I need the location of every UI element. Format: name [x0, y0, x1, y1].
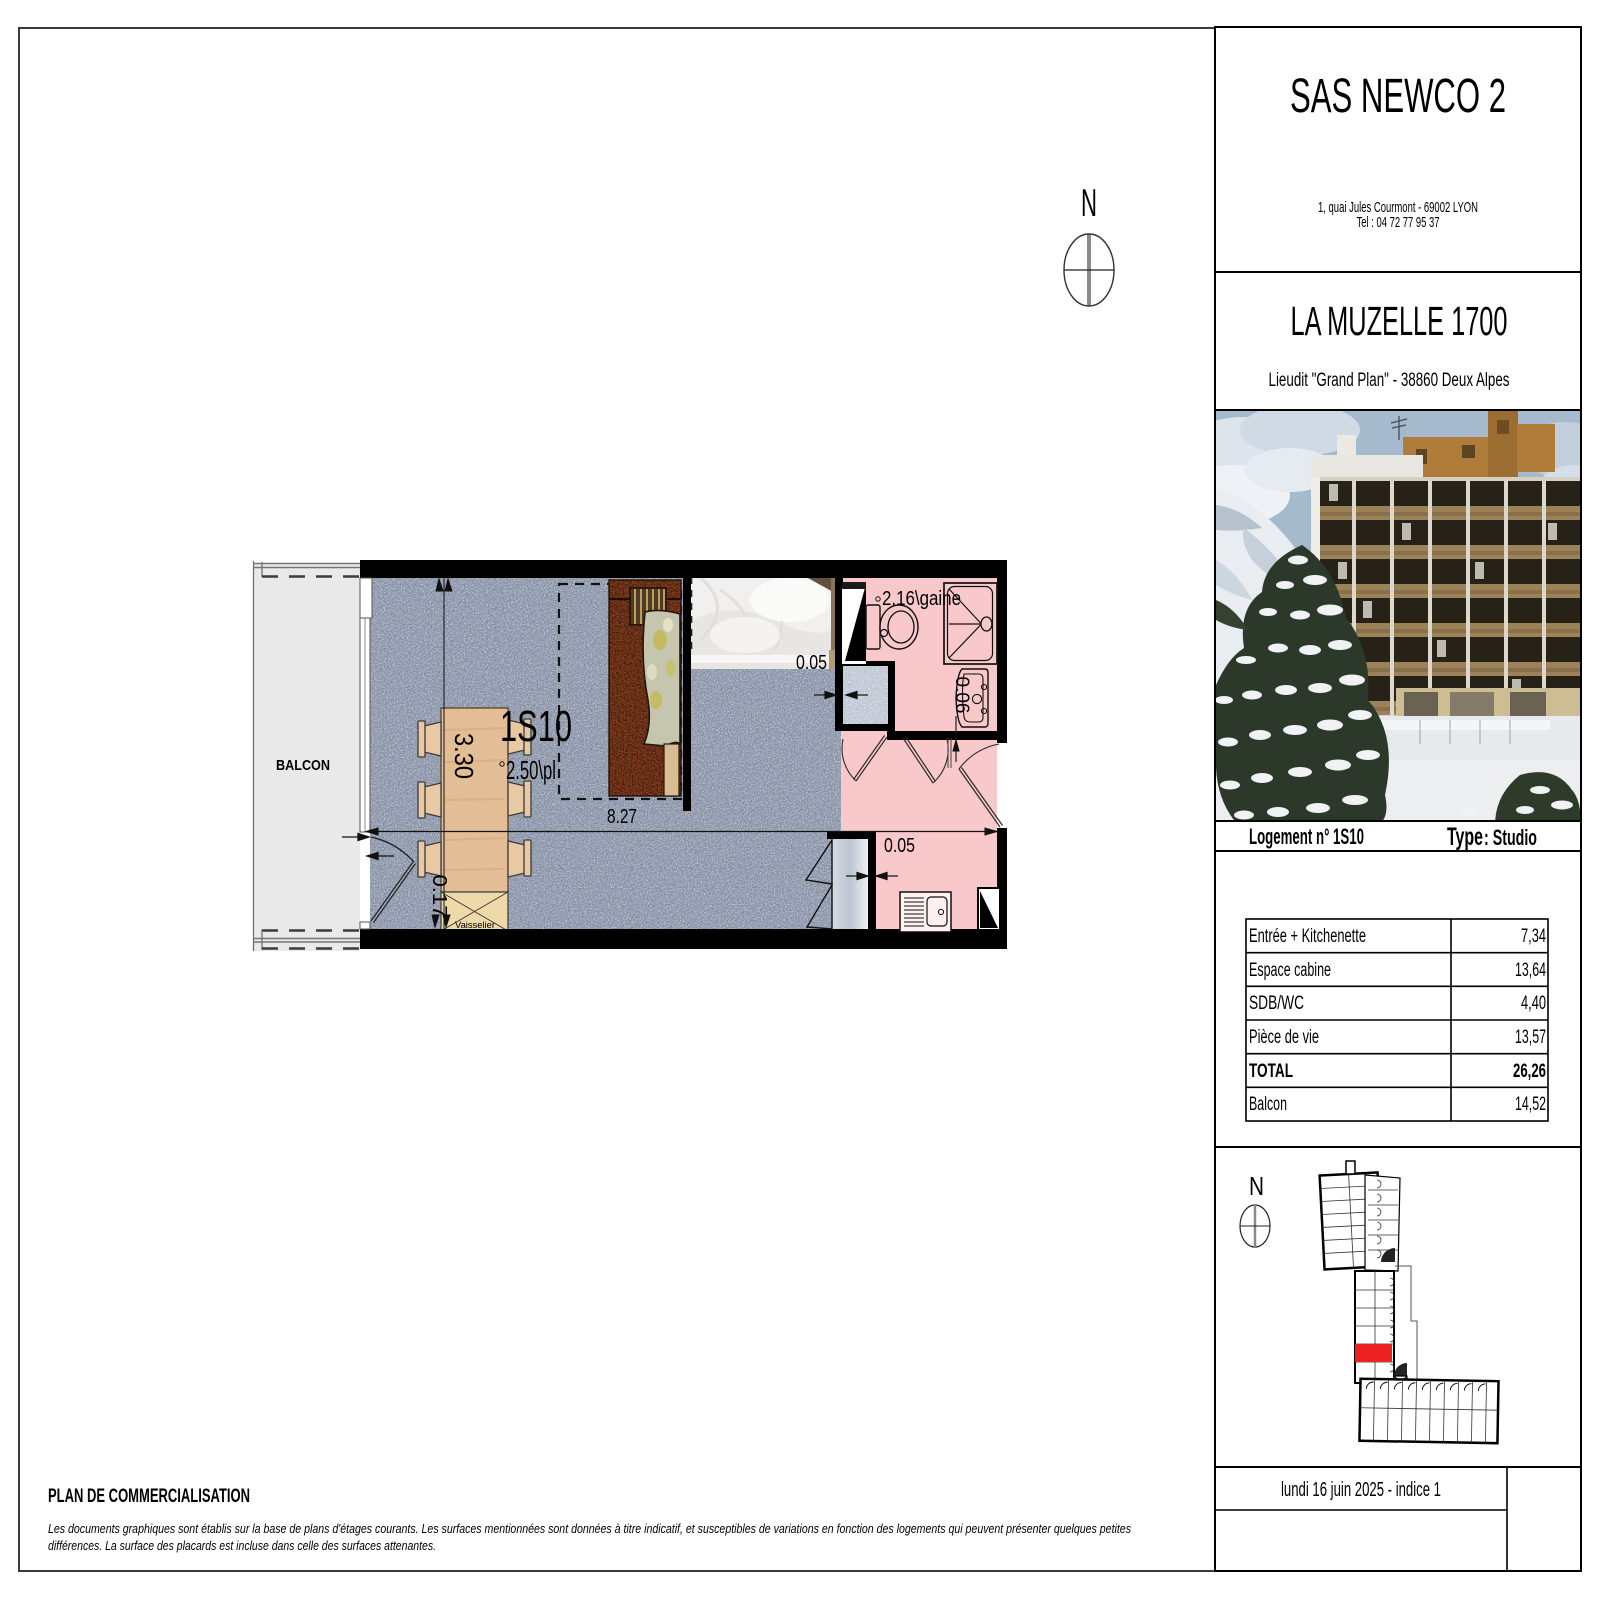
- svg-text:N: N: [1081, 182, 1097, 225]
- svg-text:différences. La surface des pl: différences. La surface des placards est…: [48, 1538, 436, 1553]
- svg-text:SDB/WC: SDB/WC: [1249, 993, 1304, 1014]
- svg-text:0.05: 0.05: [884, 835, 915, 857]
- svg-text:BALCON: BALCON: [276, 757, 330, 774]
- svg-text:TOTAL: TOTAL: [1249, 1061, 1293, 1082]
- svg-text:3.30: 3.30: [449, 733, 479, 779]
- svg-text:Pièce de vie: Pièce de vie: [1249, 1027, 1319, 1048]
- svg-text:7,34: 7,34: [1521, 926, 1546, 947]
- svg-text:Balcon: Balcon: [1249, 1094, 1287, 1115]
- svg-text:Logement n° 1S10: Logement n° 1S10: [1249, 824, 1364, 849]
- svg-text:Vaisselier: Vaisselier: [455, 920, 495, 930]
- svg-text:Entrée + Kitchenette: Entrée + Kitchenette: [1249, 926, 1366, 947]
- svg-text:1S10: 1S10: [500, 702, 572, 751]
- svg-text:13,57: 13,57: [1515, 1027, 1546, 1048]
- svg-text:14,52: 14,52: [1515, 1094, 1546, 1115]
- svg-text:26,26: 26,26: [1513, 1061, 1546, 1082]
- svg-text:lundi 16 juin 2025 - indice 1: lundi 16 juin 2025 - indice 1: [1281, 1479, 1441, 1501]
- svg-text:0.06: 0.06: [951, 677, 972, 714]
- svg-text:8.27: 8.27: [607, 806, 637, 828]
- svg-text:SAS NEWCO 2: SAS NEWCO 2: [1290, 70, 1506, 123]
- svg-text:LA MUZELLE 1700: LA MUZELLE 1700: [1291, 298, 1508, 344]
- svg-text:13,64: 13,64: [1515, 960, 1546, 981]
- svg-text:Tel : 04 72 77 95 37: Tel : 04 72 77 95 37: [1357, 214, 1440, 231]
- svg-text:0.05: 0.05: [796, 652, 827, 674]
- svg-text:2.50\pl: 2.50\pl: [506, 755, 556, 785]
- svg-text:Type: Type: [1447, 823, 1483, 851]
- svg-text:4,40: 4,40: [1521, 993, 1546, 1014]
- svg-text:0.17: 0.17: [428, 875, 450, 918]
- svg-text:2.16\gaine: 2.16\gaine: [882, 588, 961, 610]
- svg-text:PLAN DE COMMERCIALISATION: PLAN DE COMMERCIALISATION: [48, 1486, 250, 1507]
- svg-text:Les documents graphiques sont: Les documents graphiques sont établis su…: [48, 1521, 1131, 1536]
- svg-text:Espace cabine: Espace cabine: [1249, 960, 1331, 981]
- svg-text:: Studio: : Studio: [1484, 825, 1537, 850]
- svg-text:N: N: [1249, 1171, 1264, 1201]
- svg-text:Lieudit "Grand Plan" - 38860 D: Lieudit "Grand Plan" - 38860 Deux Alpes: [1269, 370, 1510, 391]
